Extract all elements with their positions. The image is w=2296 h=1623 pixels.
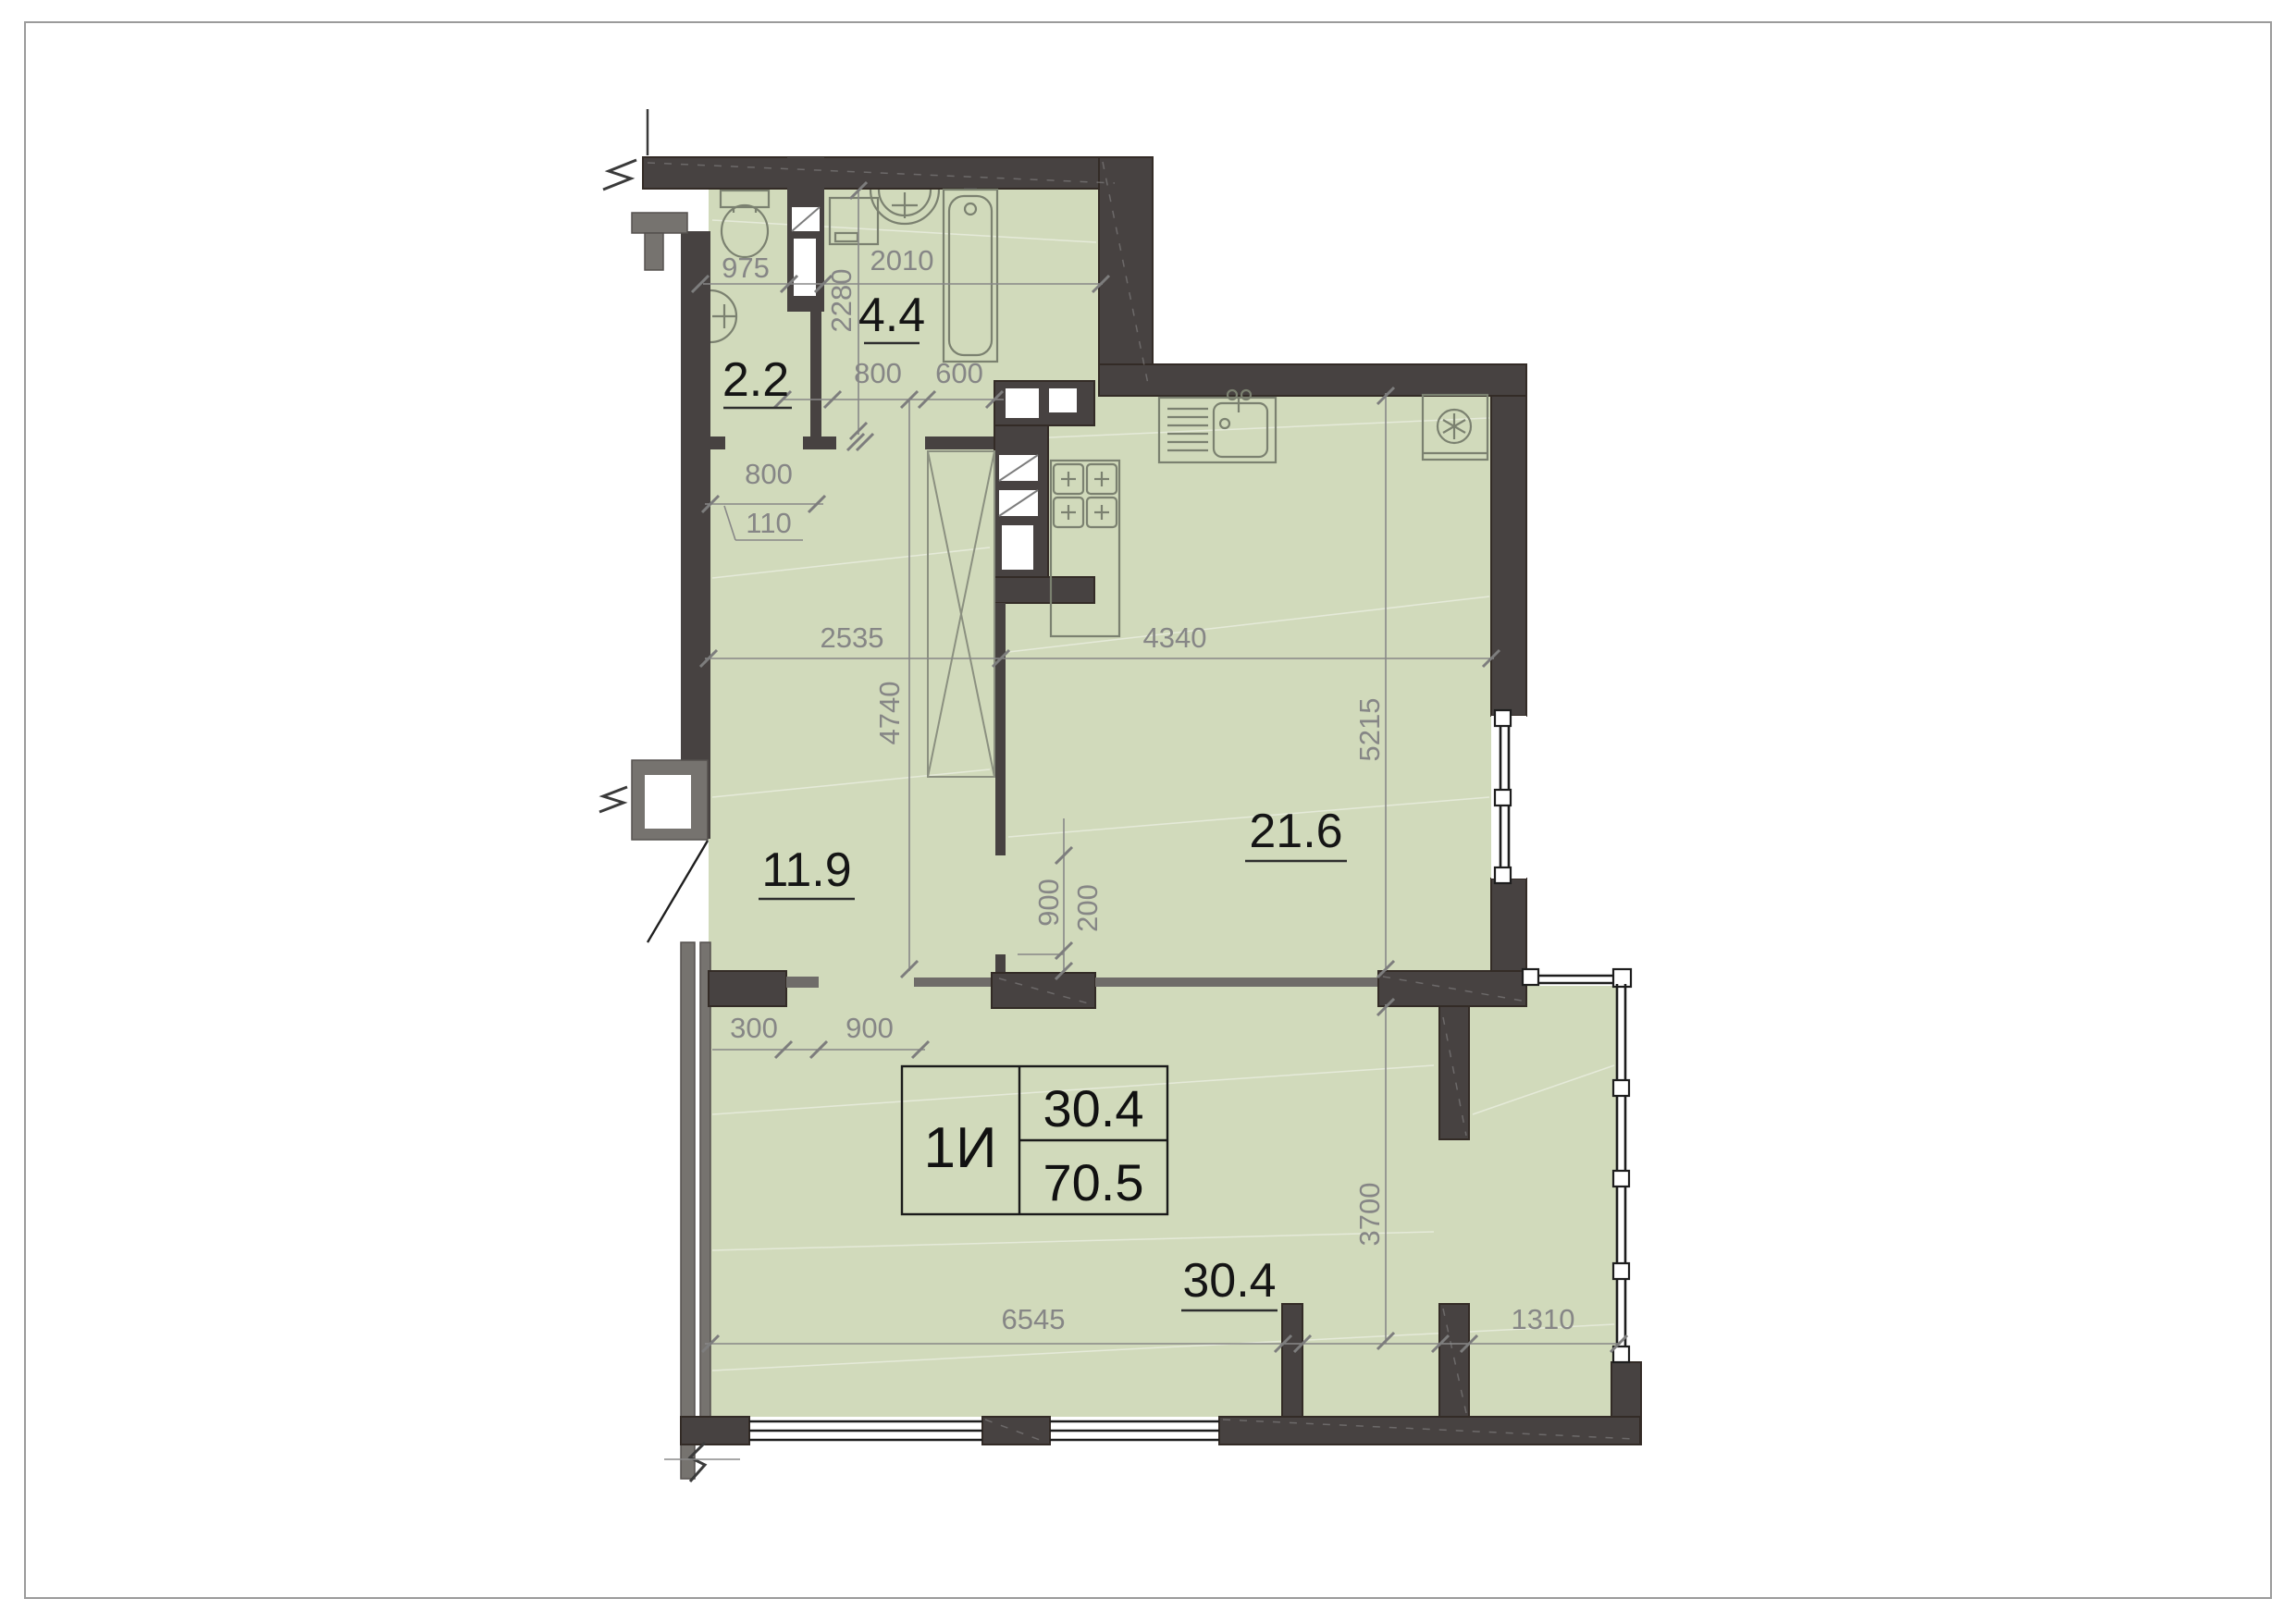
wall-mid-left (709, 971, 786, 1006)
floor-plan-drawing: 975 2010 2280 800 600 800 110 2535 4740 … (0, 0, 2296, 1623)
dim-duct-width: 600 (935, 357, 983, 389)
balcony-right-mullion1 (1613, 1080, 1629, 1096)
dim-hallway-width: 2535 (821, 621, 884, 654)
balcony-top-mullion1 (1523, 969, 1538, 985)
dim-room-width: 6545 (1002, 1303, 1066, 1335)
dim-hallway-depth: 4740 (873, 682, 906, 745)
floor-balcony (1469, 986, 1617, 1417)
pier-bottom-left (681, 1417, 749, 1445)
wall-wc-door-jamb (696, 436, 725, 449)
dim-wc-width: 975 (722, 252, 770, 284)
wall-left-lower-outer (681, 942, 695, 1479)
wall-mid-block (992, 973, 1095, 1008)
sill-kitchen-living (1095, 977, 1378, 987)
floor-balcony-passage (1440, 1139, 1469, 1304)
area-label-living-room: 30.4 (1182, 1254, 1276, 1308)
area-label-wc: 2.2 (722, 353, 789, 407)
unit-type-label: 1И (923, 1116, 996, 1180)
entry-porch-notch (645, 775, 691, 829)
dim-kitchen-width: 4340 (1143, 621, 1207, 654)
wall-kitchen-top (1099, 364, 1526, 396)
kitchen-window-mullion3 (1495, 867, 1511, 883)
duct-kitchen-void3 (1002, 525, 1033, 570)
duct-niche (794, 239, 816, 296)
dim-bathroom-width: 2010 (870, 244, 934, 277)
dim-wc-door-offset: 110 (746, 507, 791, 539)
pier-bottom-mid (982, 1417, 1050, 1445)
kitchen-window (1491, 710, 1526, 883)
area-label-bathroom: 4.4 (858, 289, 925, 342)
living-area-value: 30.4 (1043, 1079, 1144, 1137)
duct-kitchen-void2 (1049, 388, 1077, 412)
dim-balcony-width: 1310 (1512, 1303, 1575, 1335)
dim-kitchen-depth: 5215 (1353, 698, 1386, 762)
dim-kitchen-passage-offset: 200 (1071, 884, 1104, 932)
entry-door-swing (648, 841, 708, 942)
wall-hall-kitchen-partition (995, 603, 1006, 855)
kitchen-window-mullion2 (1495, 790, 1511, 805)
sill-hall-passage (914, 977, 994, 987)
balcony-right-mullion3 (1613, 1263, 1629, 1279)
break-symbol-top (603, 160, 636, 190)
balcony-glazing-top (1523, 969, 1631, 987)
balcony-right-mullion2 (1613, 1171, 1629, 1187)
wall-wc-bath-partition (810, 312, 821, 439)
dim-kitchen-passage: 900 (1032, 879, 1065, 927)
duct-kitchen-void1 (1006, 388, 1039, 418)
dim-wc-door: 800 (745, 458, 793, 490)
neighbor-leg-top (645, 233, 663, 270)
wall-left-upper (681, 231, 710, 839)
wall-kitchen-right-upper (1491, 396, 1526, 716)
wall-bath-bottom-right (925, 436, 994, 449)
wall-bottom-right (1219, 1417, 1640, 1445)
break-symbol-entry (599, 787, 627, 812)
dim-room-passage-offset: 300 (730, 1012, 778, 1044)
kitchen-window-mullion1 (1495, 710, 1511, 726)
duct-kitchen-foot (994, 577, 1094, 603)
dim-bathroom-depth: 2280 (825, 269, 858, 333)
floor-plan-page: 975 2010 2280 800 600 800 110 2535 4740 … (0, 0, 2296, 1623)
neighbor-step-top (632, 213, 687, 233)
wall-partition-foot (803, 436, 836, 449)
pier-room-stub (1282, 1304, 1302, 1417)
wall-mid-stub (786, 977, 819, 988)
dim-bathroom-door: 800 (854, 357, 902, 389)
dim-room-passage: 900 (846, 1012, 894, 1044)
area-label-hallway: 11.9 (761, 843, 851, 897)
dim-room-depth: 3700 (1353, 1183, 1386, 1247)
area-label-kitchen: 21.6 (1249, 805, 1342, 858)
total-area-value: 70.5 (1043, 1153, 1144, 1211)
